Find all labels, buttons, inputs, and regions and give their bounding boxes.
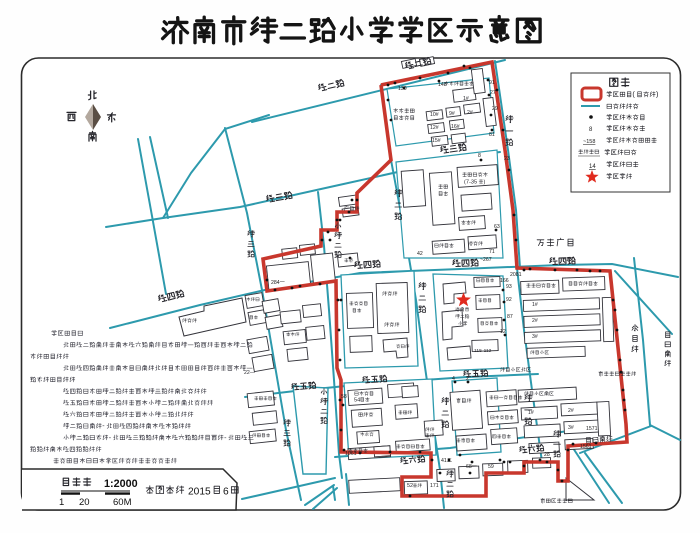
svg-text:6: 6: [223, 487, 229, 498]
svg-text:42: 42: [417, 251, 423, 257]
svg-text:148: 148: [438, 82, 447, 88]
svg-text:~267: ~267: [480, 257, 492, 263]
svg-text:71: 71: [489, 249, 495, 255]
svg-text:12#: 12#: [430, 125, 439, 131]
svg-text:22—: 22—: [244, 370, 256, 376]
svg-text:1#: 1#: [463, 96, 469, 102]
svg-text:10#: 10#: [430, 112, 439, 118]
svg-text:): ): [656, 90, 658, 99]
svg-text:1#: 1#: [532, 302, 538, 308]
svg-text:1:2000: 1:2000: [104, 478, 138, 490]
svg-text:112: 112: [484, 348, 492, 354]
svg-text:91: 91: [489, 80, 495, 86]
svg-text:3#: 3#: [568, 425, 574, 431]
svg-text:284一: 284一: [271, 280, 285, 286]
svg-text:(7-35: (7-35: [464, 179, 477, 185]
svg-text:59: 59: [488, 464, 494, 470]
svg-text:28: 28: [544, 452, 550, 458]
svg-text:87: 87: [507, 314, 513, 320]
svg-text:41二: 41二: [441, 458, 452, 464]
svg-text:81: 81: [489, 132, 495, 138]
svg-text:63: 63: [494, 224, 500, 230]
svg-text:93: 93: [506, 284, 512, 290]
svg-text:15#: 15#: [432, 138, 441, 144]
svg-text:2#: 2#: [467, 110, 473, 116]
svg-text:12: 12: [500, 329, 506, 335]
svg-text:): ): [484, 179, 486, 185]
svg-text:1: 1: [59, 497, 64, 508]
svg-text:4: 4: [452, 376, 455, 382]
svg-text:92: 92: [506, 297, 512, 303]
svg-text:171: 171: [430, 483, 439, 489]
svg-text:2#: 2#: [568, 408, 574, 414]
svg-text:~158: ~158: [583, 139, 595, 145]
svg-text:1561: 1561: [580, 444, 592, 450]
svg-text:14: 14: [589, 164, 596, 170]
svg-text:54: 54: [354, 397, 360, 403]
svg-text:115: 115: [474, 348, 482, 354]
svg-text:60M: 60M: [113, 497, 132, 508]
svg-text:27: 27: [490, 90, 496, 96]
svg-text:1#: 1#: [528, 410, 534, 416]
svg-text:58: 58: [341, 394, 347, 400]
svg-text:29: 29: [492, 106, 498, 112]
svg-text:2#: 2#: [532, 318, 538, 324]
svg-text:9#: 9#: [449, 111, 455, 117]
svg-text:68一: 68一: [466, 464, 477, 470]
svg-text:2081: 2081: [510, 272, 522, 278]
svg-text:1571: 1571: [586, 426, 598, 432]
svg-text:130: 130: [398, 86, 407, 92]
svg-text:3#: 3#: [532, 334, 538, 340]
svg-text:23: 23: [504, 156, 510, 162]
svg-text:20: 20: [79, 497, 90, 508]
svg-text:2015: 2015: [188, 487, 211, 498]
svg-text:8: 8: [478, 153, 481, 159]
svg-text:52: 52: [407, 483, 413, 489]
svg-text:16#: 16#: [451, 124, 460, 130]
